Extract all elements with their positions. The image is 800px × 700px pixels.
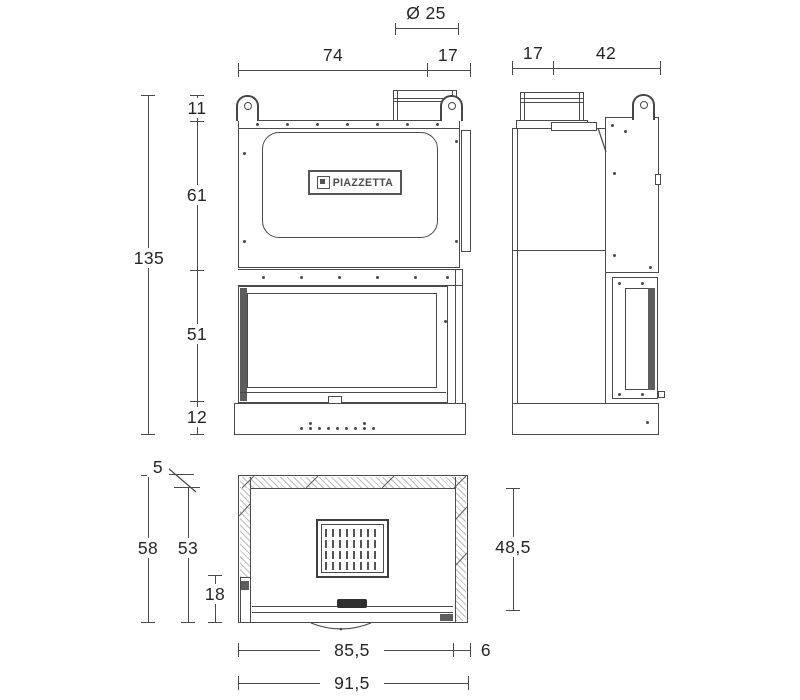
dim-tick	[395, 22, 396, 35]
dim-label-hook-height: 11	[180, 98, 214, 118]
dim-label-inner-width: 85,5	[320, 640, 384, 660]
dim-line	[512, 68, 660, 69]
dim-label-rear-depth: 42	[588, 43, 624, 63]
dim-label-base-height: 12	[180, 407, 214, 427]
dim-line	[197, 95, 198, 434]
dim-tick	[141, 622, 155, 623]
brand-plate: PIAZZETTA	[308, 170, 402, 195]
dim-label-side-wall: 6	[476, 640, 496, 660]
dim-label-overall-depth: 58	[130, 538, 166, 558]
hook-hole	[640, 101, 648, 109]
dim-line	[395, 28, 458, 29]
dim-tick	[190, 95, 204, 96]
dim-tick	[553, 61, 554, 75]
dim-tick	[238, 676, 239, 690]
dim-tick	[660, 61, 661, 75]
dim-label-side-extension: 17	[431, 45, 465, 65]
dim-tick	[141, 434, 155, 435]
technical-drawing-canvas: PIAZZETTA	[0, 0, 800, 700]
dim-tick	[470, 643, 471, 657]
dim-tick	[190, 434, 204, 435]
dim-tick	[190, 270, 204, 271]
dim-label-front-depth: 17	[515, 43, 551, 63]
dimensions-layer: Ø 25 74 17 17 42 135 11 61 51 12	[0, 0, 800, 700]
dim-tick	[458, 22, 459, 35]
dim-tick	[238, 643, 239, 657]
dim-label-flue-diameter: Ø 25	[392, 3, 460, 23]
dim-label-body-width: 74	[315, 45, 351, 65]
dim-tick	[512, 61, 513, 75]
dim-label-front-section-depth: 18	[197, 584, 233, 604]
dim-tick	[181, 622, 195, 623]
piazzetta-logo-text: PIAZZETTA	[333, 176, 394, 189]
dim-tick	[141, 95, 155, 96]
dim-label-inner-depth: 53	[170, 538, 206, 558]
dim-tick	[506, 610, 520, 611]
dim-tick	[208, 575, 222, 576]
lifting-hook-side	[632, 94, 655, 120]
dim-tick	[470, 63, 471, 77]
dim-tick	[168, 474, 194, 475]
dim-tick	[208, 622, 222, 623]
hook-hole	[244, 102, 252, 110]
piazzetta-logo-icon	[317, 176, 330, 189]
dim-label-door-height: 51	[180, 324, 214, 344]
dim-tick	[453, 643, 454, 657]
dim-tick	[506, 488, 520, 489]
dim-label-overall-height: 135	[129, 248, 169, 268]
dim-tick	[190, 121, 204, 122]
dim-tick	[174, 487, 200, 488]
hook-hole	[448, 102, 456, 110]
dim-tick	[468, 676, 469, 690]
dim-line	[238, 70, 470, 71]
dim-label-glass-side-depth: 48,5	[488, 537, 538, 557]
lifting-hook-right	[440, 95, 463, 121]
dim-tick	[427, 63, 428, 77]
lifting-hook-left	[236, 95, 259, 121]
dim-label-overall-width: 91,5	[320, 673, 384, 693]
dim-tick	[190, 401, 204, 402]
dim-label-wall-thickness: 5	[147, 457, 169, 477]
dim-tick	[238, 63, 239, 77]
dim-label-hood-height: 61	[180, 185, 214, 205]
